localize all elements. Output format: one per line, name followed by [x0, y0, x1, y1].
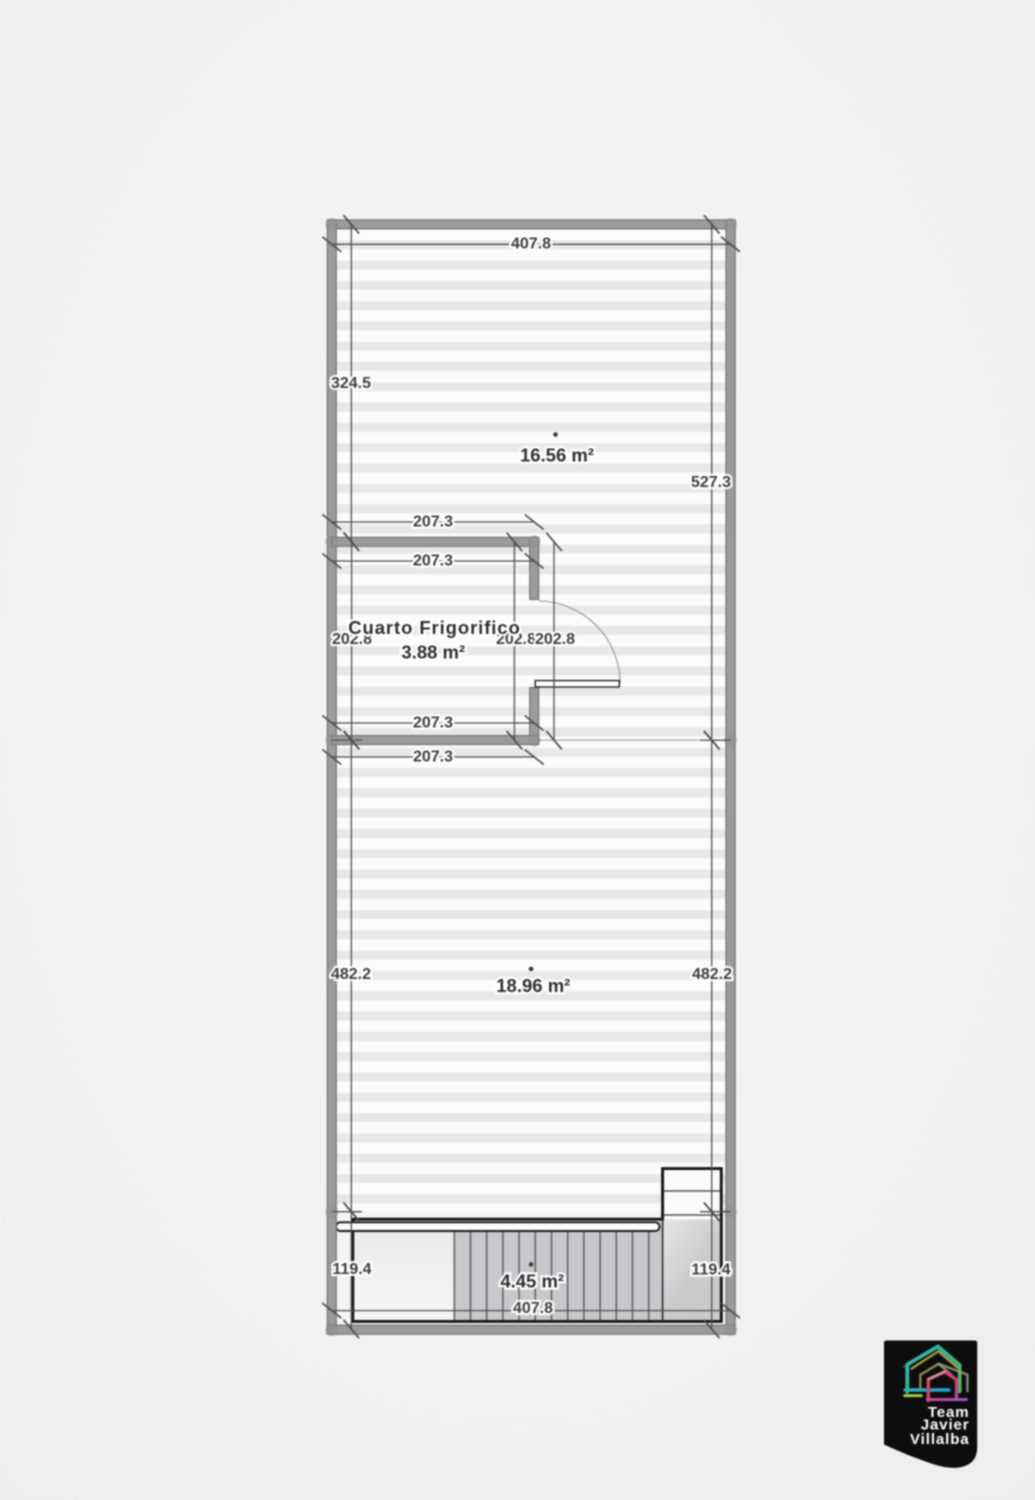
svg-text:16.56 m²: 16.56 m²: [520, 445, 594, 466]
svg-text:Villalba: Villalba: [910, 1431, 969, 1448]
svg-text:207.3: 207.3: [413, 748, 453, 765]
svg-text:482.2: 482.2: [331, 966, 371, 983]
svg-text:119.4: 119.4: [691, 1262, 730, 1279]
svg-text:119.4: 119.4: [332, 1261, 371, 1278]
svg-text:18.96 m²: 18.96 m²: [496, 975, 570, 996]
svg-text:3.88 m²: 3.88 m²: [401, 641, 465, 662]
svg-text:202.8: 202.8: [535, 631, 575, 648]
svg-text:207.3: 207.3: [413, 552, 453, 569]
svg-text:324.5: 324.5: [331, 375, 371, 392]
svg-text:207.3: 207.3: [413, 714, 453, 731]
svg-text:482.2: 482.2: [692, 966, 732, 983]
svg-text:527.3: 527.3: [691, 474, 731, 491]
svg-text:4.45 m²: 4.45 m²: [500, 1270, 564, 1291]
svg-text:407.8: 407.8: [513, 1300, 553, 1317]
svg-text:407.8: 407.8: [511, 236, 551, 253]
svg-text:207.3: 207.3: [413, 513, 453, 530]
svg-text:Cuarto Frigorifico: Cuarto Frigorifico: [348, 617, 520, 638]
